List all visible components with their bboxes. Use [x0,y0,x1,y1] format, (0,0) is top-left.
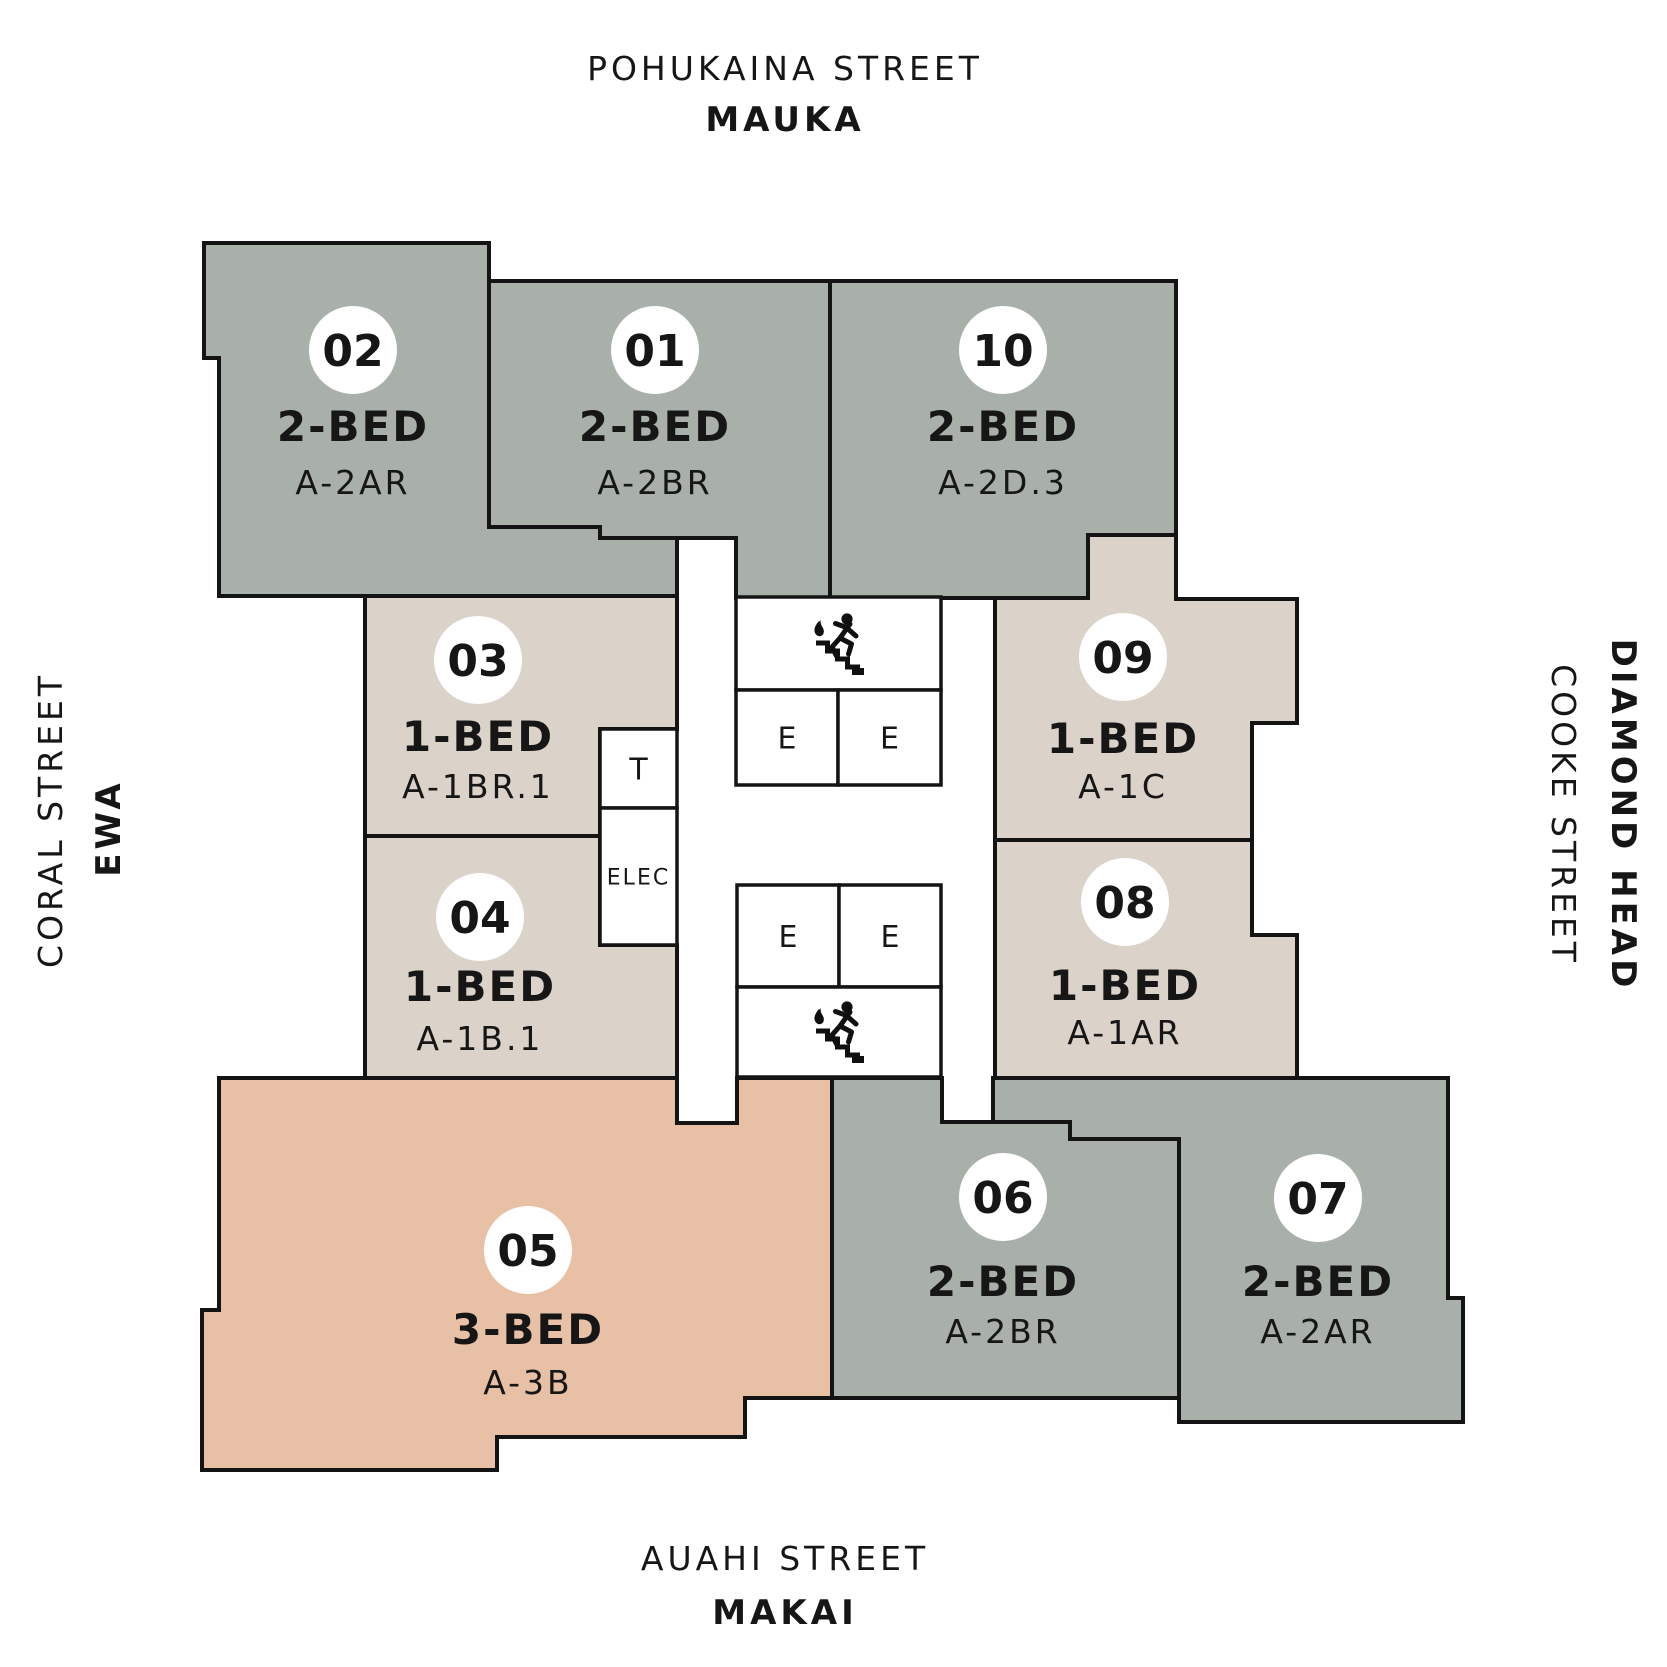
electrical-room-label: ELEC [607,866,670,891]
unit-06-number: 06 [972,1173,1033,1224]
elevator-3: E [737,885,839,987]
unit-08-bed-count: 1-BED [1049,961,1201,1010]
unit-10-number: 10 [972,326,1033,377]
street-right-name: COOKE STREET [1544,664,1583,966]
elevator-4-label: E [881,920,900,955]
unit-10-plan-type: A-2D.3 [938,463,1068,502]
unit-05[interactable]: 053-BEDA-3B [202,1078,832,1470]
stair-upper-room [736,597,941,690]
unit-01-number: 01 [624,326,685,377]
unit-07-bed-count: 2-BED [1242,1257,1394,1306]
unit-06-bed-count: 2-BED [927,1257,1079,1306]
unit-09-number: 09 [1092,633,1153,684]
units-layer: 022-BEDA-2AR012-BEDA-2BR102-BEDA-2D.3031… [202,243,1463,1470]
unit-04-number: 04 [449,893,510,944]
street-top-name: POHUKAINA STREET [587,49,983,88]
street-bottom-name: AUAHI STREET [641,1539,929,1578]
unit-05-number: 05 [497,1226,558,1277]
unit-05-plan-type: A-3B [483,1363,572,1402]
electrical-room: ELEC [600,808,677,945]
unit-05-bed-count: 3-BED [452,1305,604,1354]
unit-07-plan-type: A-2AR [1260,1312,1375,1351]
trash-room-label: T [628,753,648,788]
unit-04-plan-type: A-1B.1 [417,1019,544,1058]
elevator-4: E [839,885,941,987]
unit-08[interactable]: 081-BEDA-1AR [995,840,1297,1078]
unit-02-plan-type: A-2AR [295,463,410,502]
unit-02-bed-count: 2-BED [277,402,429,451]
stair-lower-room [737,987,941,1077]
unit-08-number: 08 [1094,878,1155,929]
floor-plan-svg: 022-BEDA-2AR012-BEDA-2BR102-BEDA-2D.3031… [0,0,1667,1667]
street-left-name: CORAL STREET [31,672,70,968]
street-bottom-direction: MAKAI [712,1593,857,1633]
unit-07-number: 07 [1287,1174,1348,1225]
unit-03-plan-type: A-1BR.1 [402,767,554,806]
unit-02-number: 02 [322,326,383,377]
stair-upper [736,597,941,690]
elevator-3-label: E [779,920,798,955]
floorplan-page: 022-BEDA-2AR012-BEDA-2BR102-BEDA-2D.3031… [0,0,1667,1667]
unit-09-bed-count: 1-BED [1047,714,1199,763]
unit-04-bed-count: 1-BED [404,962,556,1011]
stair-lower [737,987,941,1077]
unit-10-bed-count: 2-BED [927,402,1079,451]
elevator-2: E [838,690,941,785]
unit-03-bed-count: 1-BED [402,712,554,761]
street-right-direction: DIAMOND HEAD [1603,639,1643,992]
elevator-2-label: E [880,722,899,757]
unit-06-plan-type: A-2BR [945,1312,1060,1351]
unit-09-plan-type: A-1C [1078,767,1168,806]
street-top-direction: MAUKA [705,100,864,140]
unit-01-plan-type: A-2BR [597,463,712,502]
trash-room: T [600,729,677,808]
unit-08-plan-type: A-1AR [1067,1013,1182,1052]
unit-03-number: 03 [447,636,508,687]
elevator-1: E [736,690,838,785]
street-left-direction: EWA [89,779,129,877]
elevator-1-label: E [778,722,797,757]
unit-01-bed-count: 2-BED [579,402,731,451]
